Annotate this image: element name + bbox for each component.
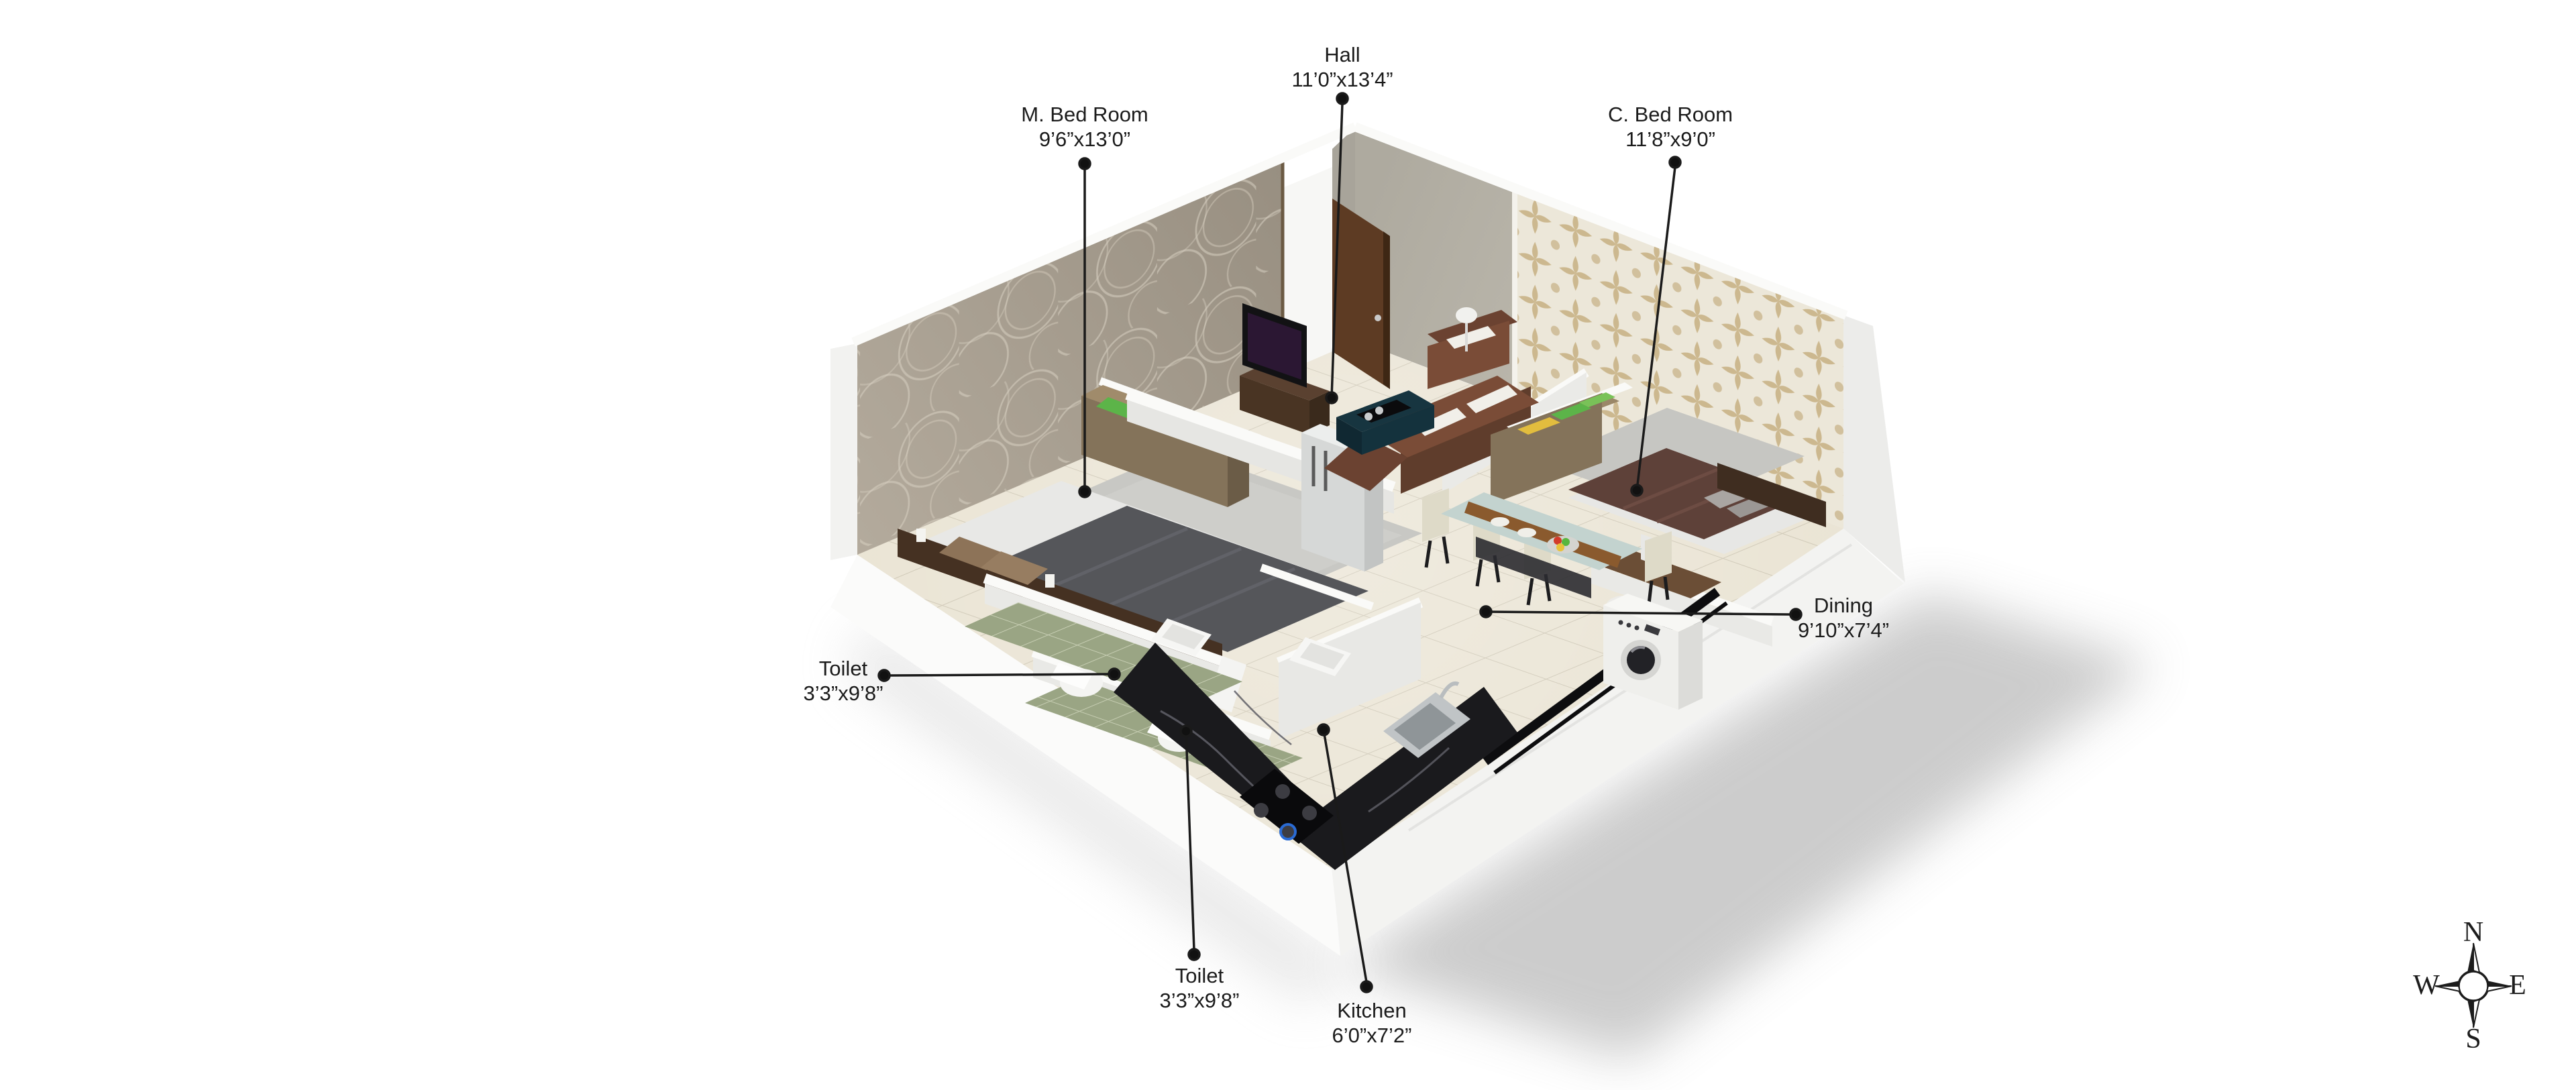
room-name: C. Bed Room — [1608, 102, 1733, 127]
room-dims: 11’0”x13’4” — [1291, 67, 1393, 92]
room-dims: 9’10”x7’4” — [1798, 618, 1889, 643]
wall-light — [1045, 574, 1055, 588]
leader-dot-mbed — [1079, 486, 1090, 497]
leader-dot-hall — [1326, 392, 1337, 403]
leader-dot-dining — [1481, 606, 1491, 617]
floor-lamp — [1456, 307, 1477, 323]
label-toilet-bottom: Toilet 3’3”x9’8” — [1160, 963, 1240, 1013]
room-name: Dining — [1798, 593, 1889, 618]
leader-dot-cbed — [1631, 485, 1642, 496]
room-dims: 6’0”x7’2” — [1332, 1023, 1412, 1048]
label-m-bed-room: M. Bed Room 9’6”x13’0” — [1021, 102, 1148, 152]
room-name: M. Bed Room — [1021, 102, 1148, 127]
room-dims: 3’3”x9’8” — [1160, 988, 1240, 1013]
room-dims: 3’3”x9’8” — [804, 681, 883, 706]
label-toilet-left: Toilet 3’3”x9’8” — [804, 656, 883, 706]
room-name: Hall — [1291, 42, 1393, 67]
door-handle — [1375, 315, 1381, 321]
room-dims: 9’6”x13’0” — [1021, 127, 1148, 152]
label-hall: Hall 11’0”x13’4” — [1291, 42, 1393, 92]
room-name: Toilet — [804, 656, 883, 681]
label-dining: Dining 9’10”x7’4” — [1798, 593, 1889, 643]
leader-dot-kitchen — [1318, 724, 1329, 735]
wall-light — [916, 529, 926, 542]
compass-north: N — [2463, 916, 2483, 948]
room-name: Kitchen — [1332, 998, 1412, 1023]
room-dims: 11’8”x9’0” — [1608, 127, 1733, 152]
room-name: Toilet — [1160, 963, 1240, 988]
floor-plan-stage: M. Bed Room 9’6”x13’0” Hall 11’0”x13’4” … — [0, 0, 2576, 1090]
leader-dot-toilet-bottom — [1181, 726, 1191, 737]
leader-dot-toilet-left — [1109, 669, 1120, 679]
label-c-bed-room: C. Bed Room 11’8”x9’0” — [1608, 102, 1733, 152]
washer-door — [1627, 646, 1655, 674]
compass-south: S — [2465, 1023, 2481, 1055]
compass-rose — [2435, 943, 2512, 1028]
compass-east: E — [2509, 969, 2526, 1001]
floor-plan-render — [0, 0, 2576, 1090]
compass-west: W — [2413, 969, 2440, 1001]
label-kitchen: Kitchen 6’0”x7’2” — [1332, 998, 1412, 1048]
